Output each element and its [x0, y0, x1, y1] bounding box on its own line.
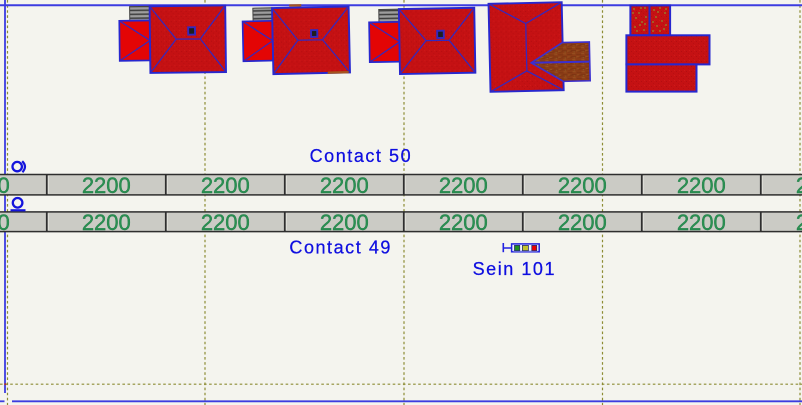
svg-text:2200: 2200	[558, 173, 607, 198]
svg-text:2200: 2200	[201, 173, 250, 198]
svg-text:2200: 2200	[677, 173, 726, 198]
svg-text:2200: 2200	[558, 210, 607, 235]
svg-text:2200: 2200	[0, 210, 10, 235]
svg-text:2200: 2200	[0, 173, 10, 198]
svg-text:2200: 2200	[796, 173, 802, 198]
svg-text:2200: 2200	[796, 210, 802, 235]
svg-text:2200: 2200	[320, 210, 369, 235]
svg-text:2200: 2200	[439, 173, 488, 198]
svg-text:2200: 2200	[439, 210, 488, 235]
svg-text:2200: 2200	[677, 210, 726, 235]
svg-text:Sein 101: Sein 101	[473, 259, 556, 279]
svg-text:2200: 2200	[82, 210, 131, 235]
svg-text:Contact 49: Contact 49	[289, 237, 392, 257]
svg-text:Contact 50: Contact 50	[310, 146, 413, 166]
svg-text:2200: 2200	[82, 173, 131, 198]
svg-text:2200: 2200	[201, 210, 250, 235]
svg-text:2200: 2200	[320, 173, 369, 198]
